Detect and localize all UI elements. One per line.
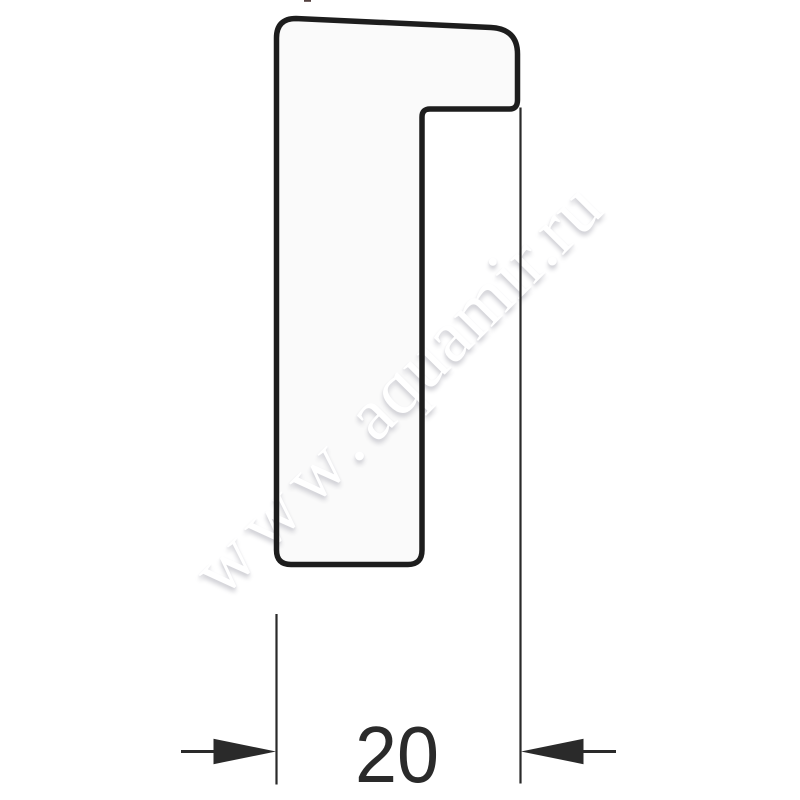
svg-text:20: 20 [355, 710, 439, 799]
